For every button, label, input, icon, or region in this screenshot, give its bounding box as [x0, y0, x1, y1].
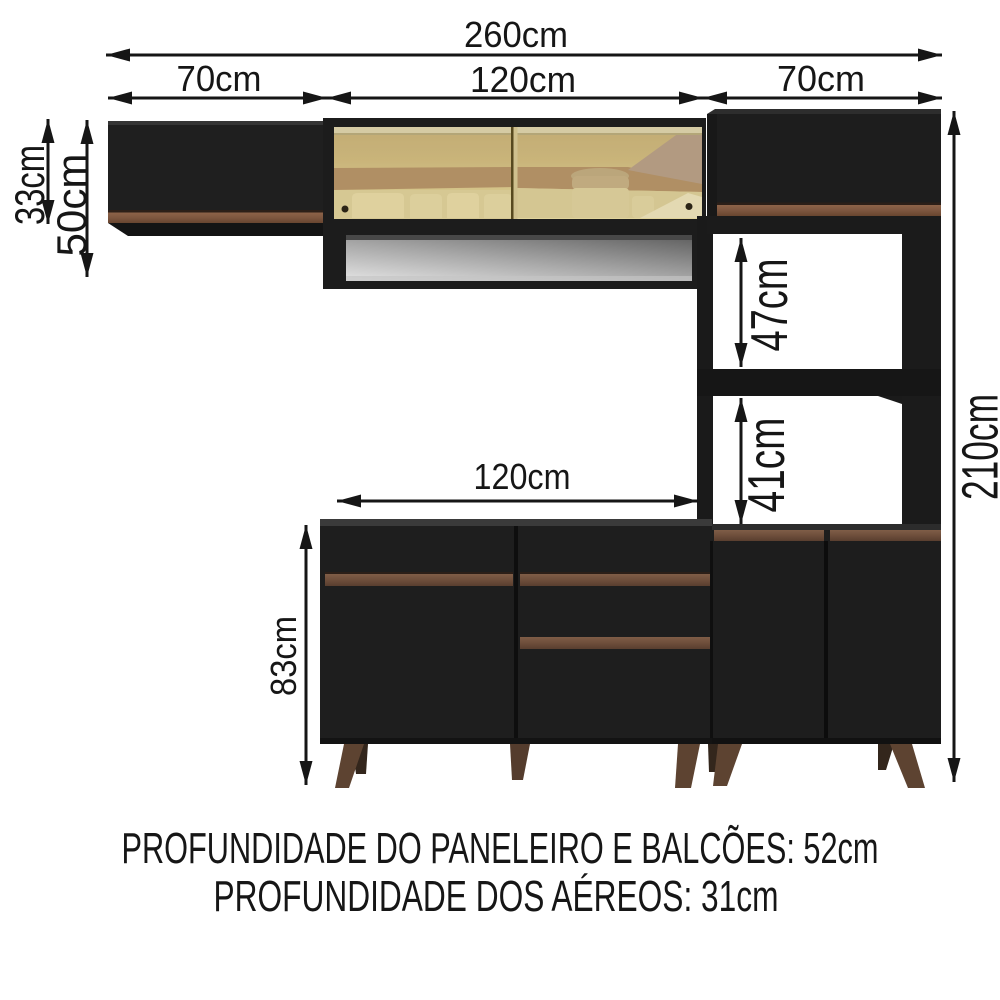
svg-text:PROFUNDIDADE DOS AÉREOS: 31cm: PROFUNDIDADE DOS AÉREOS: 31cm [214, 872, 779, 921]
svg-text:260cm: 260cm [464, 14, 568, 55]
svg-text:70cm: 70cm [777, 58, 865, 99]
svg-text:120cm: 120cm [474, 456, 571, 497]
svg-text:120cm: 120cm [470, 59, 576, 100]
svg-text:50cm: 50cm [50, 154, 96, 257]
svg-text:83cm: 83cm [263, 616, 304, 696]
svg-text:33cm: 33cm [8, 145, 54, 225]
svg-text:41cm: 41cm [736, 418, 795, 513]
svg-text:PROFUNDIDADE DO PANELEIRO E BA: PROFUNDIDADE DO PANELEIRO E BALCÕES: 52c… [122, 823, 879, 873]
svg-text:70cm: 70cm [177, 58, 262, 99]
svg-text:210cm: 210cm [952, 394, 1000, 500]
svg-text:47cm: 47cm [739, 259, 798, 352]
